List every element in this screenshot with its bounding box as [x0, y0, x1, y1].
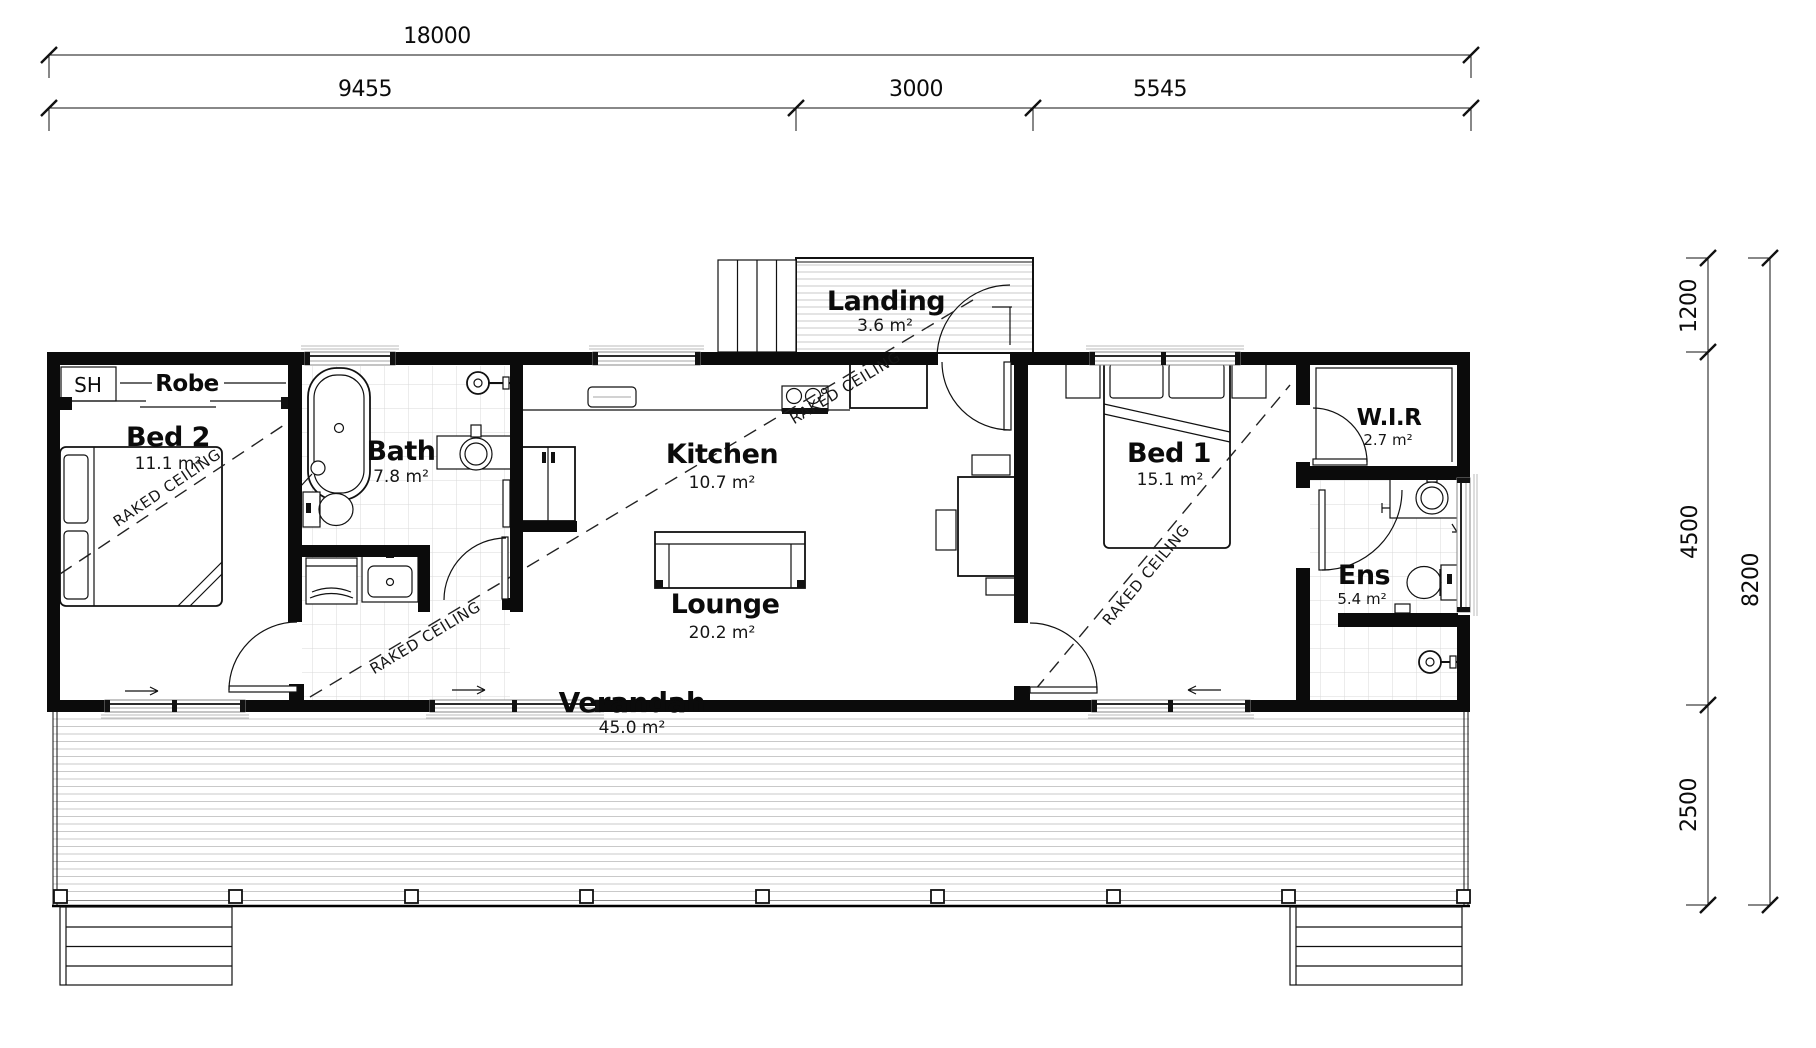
- dim-seg-5545: 5545: [1133, 77, 1187, 102]
- ens-toilet: [1407, 565, 1458, 600]
- arrow-left-icon: [1188, 686, 1221, 694]
- window-ens-east: [1457, 474, 1477, 616]
- verandah-deck: [52, 712, 1470, 985]
- bed1-side-table-left: [1066, 360, 1100, 398]
- window-bed1-south: [1088, 700, 1254, 718]
- wall-laundry-nook: [302, 545, 430, 557]
- label-bed1: Bed 1: [1127, 438, 1211, 469]
- window-bed1: [1086, 346, 1244, 365]
- laundry-washer: [306, 558, 357, 604]
- bed1-side-table-right: [1232, 360, 1266, 398]
- label-wir: W.I.R: [1357, 405, 1423, 431]
- laundry-tub: [362, 553, 418, 602]
- dim-seg-1200: 1200: [1677, 279, 1702, 333]
- wall-bath-kitchen: [510, 365, 523, 612]
- label-kitchen: Kitchen: [666, 439, 778, 470]
- dining-chair-bottom: [986, 578, 1016, 595]
- label-lounge: Lounge: [671, 589, 780, 620]
- label-bed2: Bed 2: [126, 422, 210, 453]
- label-ens: Ens: [1338, 560, 1390, 591]
- dim-overall-height: 8200: [1739, 553, 1764, 607]
- bathtub: [300, 368, 370, 500]
- label-bed1-area: 15.1 m²: [1137, 470, 1204, 490]
- label-bath-area: 7.8 m²: [373, 467, 429, 487]
- label-lounge-area: 20.2 m²: [689, 623, 756, 643]
- stairs-landing: [718, 260, 796, 352]
- label-ens-area: 5.4 m²: [1337, 590, 1386, 608]
- wall-bed1-wir: [1296, 365, 1310, 405]
- label-bath: Bath: [367, 436, 436, 467]
- label-sh: SH: [74, 373, 102, 397]
- dim-overall-width: 18000: [403, 24, 471, 49]
- window-bed2-south: [101, 700, 249, 718]
- label-kitchen-area: 10.7 m²: [689, 473, 756, 493]
- label-wir-area: 2.7 m²: [1363, 431, 1412, 449]
- dim-seg-2500: 2500: [1677, 778, 1702, 832]
- kitchen-fridge: [521, 447, 575, 521]
- wall-lounge-bed1: [1014, 365, 1028, 623]
- window-kitchen: [589, 346, 704, 365]
- bath-toilet: [303, 492, 353, 527]
- wall-ens-shower: [1338, 613, 1458, 627]
- arrow-right-icon: [125, 687, 158, 695]
- bed2-door: [229, 622, 297, 692]
- dim-seg-3000: 3000: [889, 77, 943, 102]
- bed1-door: [1030, 623, 1097, 693]
- stairs-southeast: [1290, 907, 1462, 985]
- wall-bed2-bath: [288, 365, 302, 622]
- dining-chair-left: [936, 510, 956, 550]
- window-bath: [301, 346, 399, 365]
- dining-table: [936, 455, 1016, 595]
- stairs-southwest: [60, 907, 232, 985]
- bath-shower-screen: [503, 480, 510, 527]
- dim-seg-9455: 9455: [338, 77, 392, 102]
- label-verandah: Verandah: [559, 686, 706, 719]
- label-landing-area: 3.6 m²: [857, 316, 913, 336]
- dim-seg-4500: 4500: [1678, 505, 1703, 559]
- label-landing: Landing: [827, 286, 945, 317]
- label-verandah-area: 45.0 m²: [599, 718, 666, 738]
- entry-door: [942, 362, 1011, 430]
- floor-plan-drawing: 18000 9455 3000 5545 1200 4500 2500 8200…: [0, 0, 1816, 1048]
- label-robe: Robe: [155, 371, 219, 397]
- lounge-sofa: [655, 532, 805, 588]
- floor-plan-sheet: 18000 9455 3000 5545 1200 4500 2500 8200…: [0, 0, 1816, 1048]
- wall-wir-ens: [1310, 466, 1470, 480]
- dining-chair-top: [972, 455, 1010, 475]
